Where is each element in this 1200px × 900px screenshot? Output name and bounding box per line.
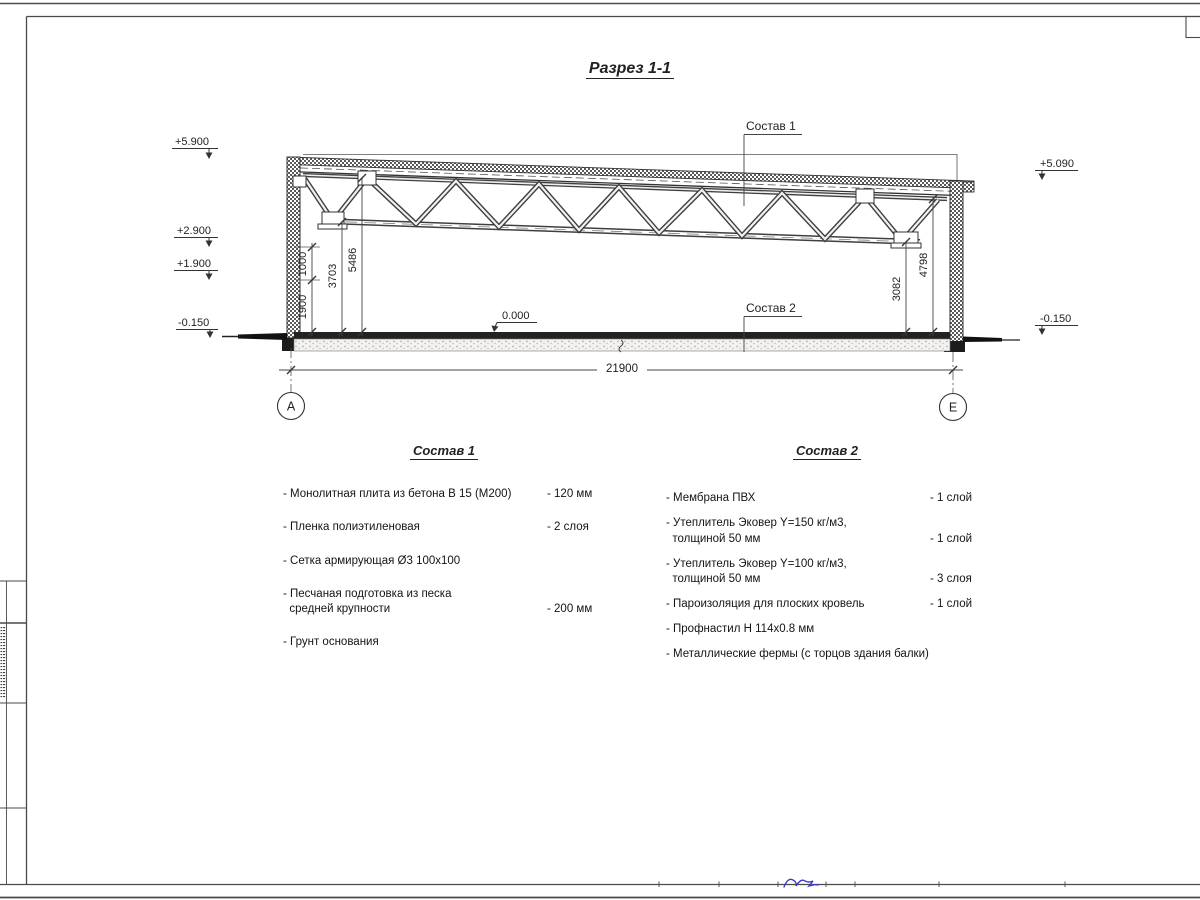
material-name: - Профнастил Н 114х0.8 мм <box>666 622 930 637</box>
material-value: - 3 слоя <box>930 572 988 587</box>
material-name: - Мембрана ПВХ <box>666 491 930 506</box>
svg-text:А: А <box>287 400 296 414</box>
material-list-1-rows: - Монолитная плита из бетона В 15 (М200)… <box>283 487 605 650</box>
material-row: - Утеплитель Эковер Y=150 кг/м3, толщино… <box>666 516 988 546</box>
page-title-text: Разрез 1-1 <box>586 60 674 79</box>
material-name: - Пленка полиэтиленовая <box>283 520 547 535</box>
elevation-left-mid2: +1.900 <box>174 258 218 280</box>
material-name: - Металлические фермы (с торцов здания б… <box>666 647 930 662</box>
stamp-vertical-text <box>1 627 6 698</box>
material-row: - Песчаная подготовка из песка средней к… <box>283 587 605 617</box>
material-value: - 200 мм <box>547 602 605 617</box>
svg-text:+5.090: +5.090 <box>1040 158 1074 170</box>
elevation-left-mid1: +2.900 <box>174 225 218 247</box>
material-list-2-rows: - Мембрана ПВХ - 1 слой - Утеплитель Эко… <box>666 491 988 662</box>
signature-squiggle <box>784 879 818 887</box>
svg-text:1900: 1900 <box>297 295 309 319</box>
material-list-2-heading: Состав 2 <box>666 442 988 459</box>
page-title: Разрез 1-1 <box>545 60 715 78</box>
svg-text:Е: Е <box>949 401 957 415</box>
elevation-zero-mark: 0.000 <box>492 310 538 332</box>
material-row: - Металлические фермы (с торцов здания б… <box>666 647 988 662</box>
material-value: - 1 слой <box>930 491 988 506</box>
svg-text:+2.900: +2.900 <box>177 225 211 237</box>
drawing-sheet: +5.900 +2.900 +1.900 -0.150 <box>0 0 1200 900</box>
material-name: - Монолитная плита из бетона В 15 (М200) <box>283 487 547 502</box>
axis-marker-a: А <box>278 393 305 420</box>
svg-text:1000: 1000 <box>297 252 309 276</box>
material-row: - Грунт основания <box>283 635 605 650</box>
material-row: - Утеплитель Эковер Y=100 кг/м3, толщино… <box>666 557 988 587</box>
ground-line-left <box>238 333 287 340</box>
material-value: - 2 слоя <box>547 520 605 535</box>
elevation-right-ground: -0.150 <box>1035 313 1078 335</box>
elevation-right-roof: +5.090 <box>1035 158 1078 180</box>
elevation-left-ground: -0.150 <box>176 317 218 338</box>
svg-text:-0.150: -0.150 <box>178 317 209 329</box>
material-list-1-heading: Состав 1 <box>283 442 605 459</box>
right-wall <box>950 181 963 342</box>
svg-text:5486: 5486 <box>347 248 359 272</box>
dim-3703: 3703 <box>327 218 346 336</box>
left-stamp-column <box>0 581 27 884</box>
ground-line-right <box>963 337 1002 343</box>
overall-dimension: 21900 <box>279 348 963 393</box>
material-value: - 1 слой <box>930 532 988 547</box>
material-name: - Грунт основания <box>283 635 547 650</box>
material-value: - 1 слой <box>930 597 988 612</box>
material-name: - Утеплитель Эковер Y=150 кг/м3, толщино… <box>666 516 930 546</box>
svg-text:+1.900: +1.900 <box>177 258 211 270</box>
svg-text:Состав 1: Состав 1 <box>746 119 796 133</box>
material-name: - Утеплитель Эковер Y=100 кг/м3, толщино… <box>666 557 930 587</box>
material-row: - Монолитная плита из бетона В 15 (М200)… <box>283 487 605 502</box>
axis-markers: А Е <box>278 393 967 421</box>
material-name: - Пароизоляция для плоских кровель <box>666 597 930 612</box>
material-row: - Пленка полиэтиленовая - 2 слоя <box>283 520 605 535</box>
elevation-left-roof: +5.900 <box>172 136 218 159</box>
svg-text:0.000: 0.000 <box>502 310 530 322</box>
material-row: - Мембрана ПВХ - 1 слой <box>666 491 988 506</box>
material-list-2: Состав 2 - Мембрана ПВХ - 1 слой - Утепл… <box>666 442 988 673</box>
material-value: - 120 мм <box>547 487 605 502</box>
dim-3082: 3082 <box>891 238 910 336</box>
svg-text:Состав 2: Состав 2 <box>746 301 796 315</box>
material-row: - Сетка армирующая Ø3 100х100 <box>283 554 605 569</box>
svg-text:3703: 3703 <box>327 264 339 288</box>
slab-concrete-band <box>294 332 950 339</box>
svg-text:-0.150: -0.150 <box>1040 313 1071 325</box>
material-name: - Песчаная подготовка из песка средней к… <box>283 587 547 617</box>
svg-text:3082: 3082 <box>891 277 903 301</box>
axis-marker-e: Е <box>940 394 967 421</box>
material-row: - Пароизоляция для плоских кровель - 1 с… <box>666 597 988 612</box>
svg-text:21900: 21900 <box>606 363 638 375</box>
material-list-1: Состав 1 - Монолитная плита из бетона В … <box>283 442 605 668</box>
svg-text:4798: 4798 <box>918 253 930 277</box>
corner-box <box>1186 17 1200 38</box>
material-name: - Сетка армирующая Ø3 100х100 <box>283 554 547 569</box>
svg-text:+5.900: +5.900 <box>175 136 209 148</box>
material-row: - Профнастил Н 114х0.8 мм <box>666 622 988 637</box>
